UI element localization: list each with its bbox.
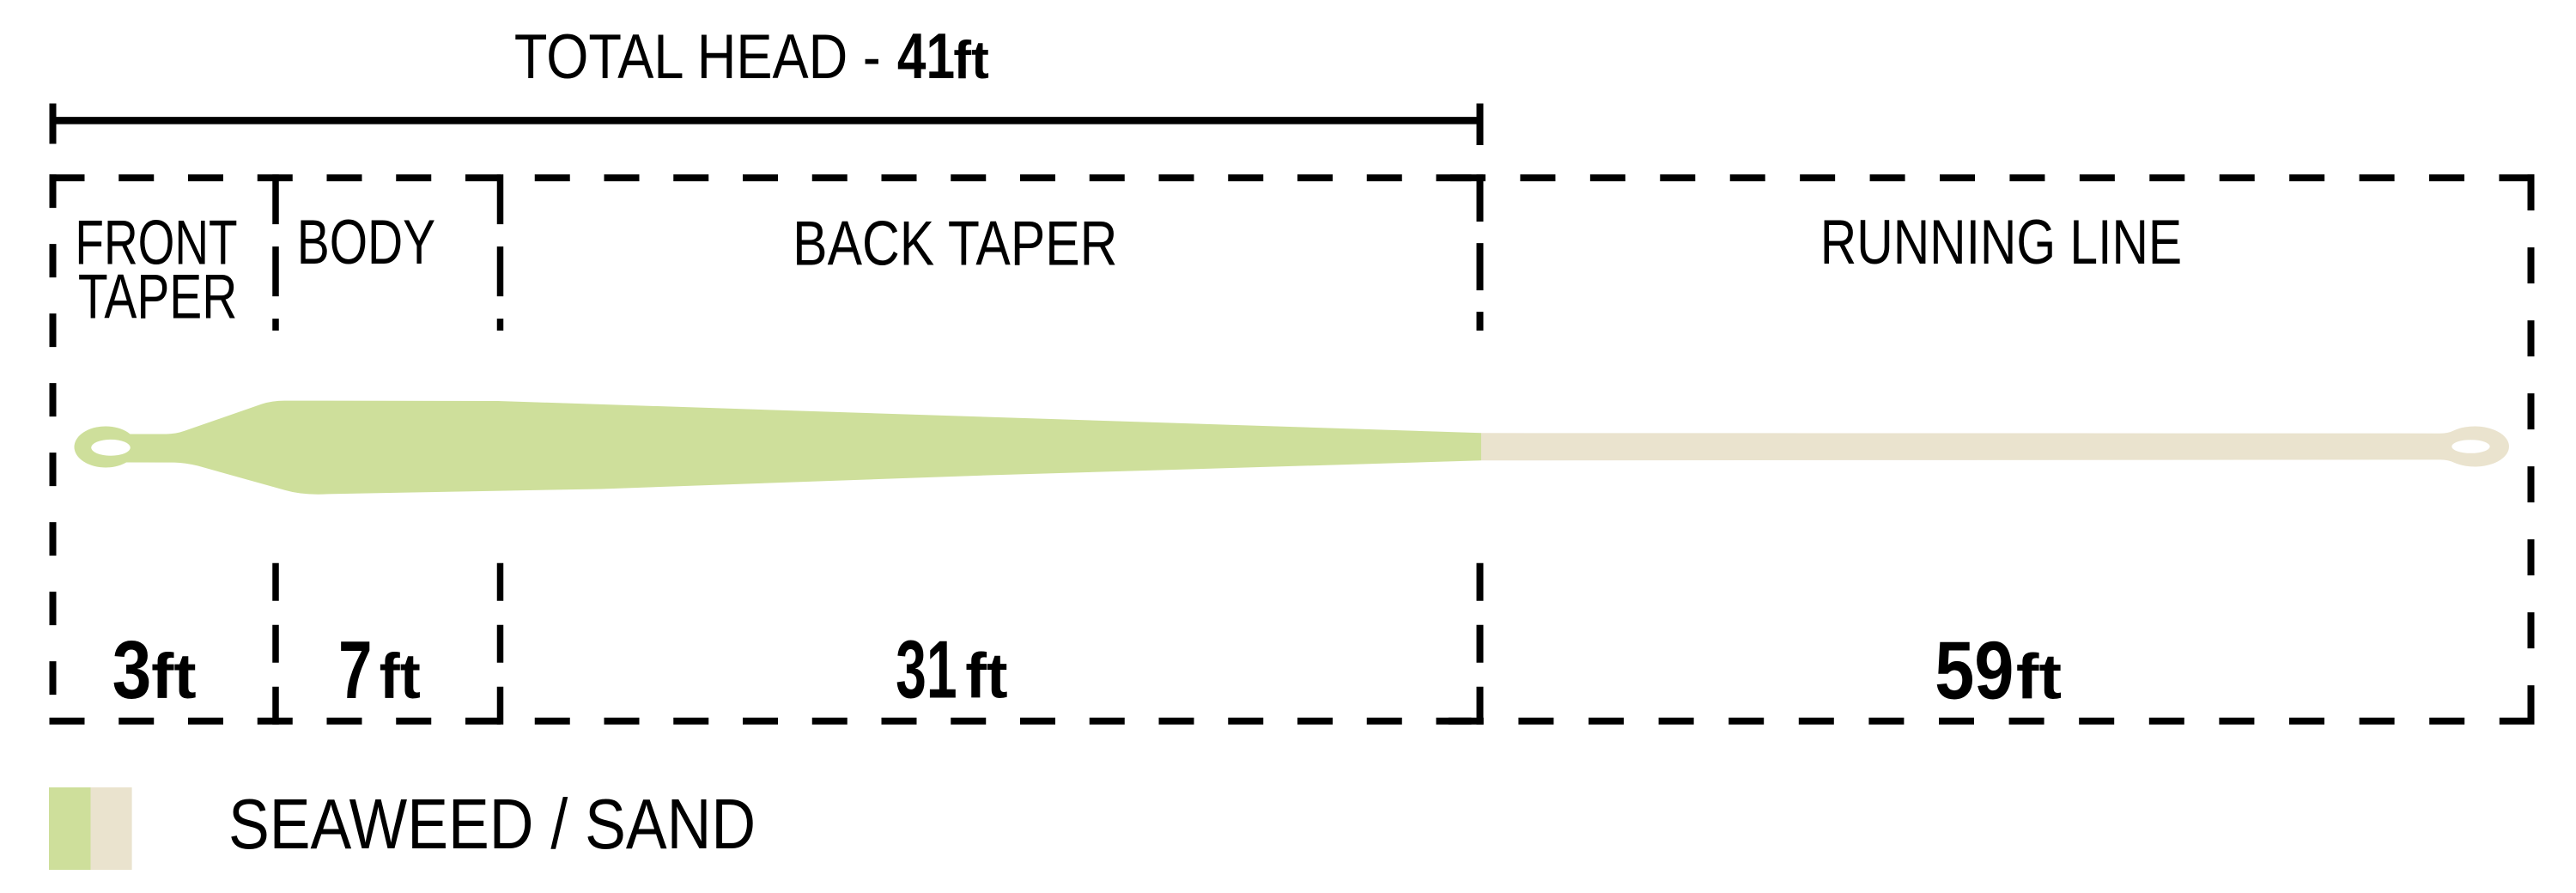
svg-text:RUNNING LINE: RUNNING LINE <box>1820 208 2182 278</box>
svg-text:41: 41 <box>897 21 955 93</box>
svg-text:TOTAL HEAD -: TOTAL HEAD - <box>514 22 881 92</box>
svg-text:ft: ft <box>953 31 988 90</box>
svg-text:7: 7 <box>338 624 372 716</box>
svg-text:ft: ft <box>965 640 1007 711</box>
svg-text:31: 31 <box>896 624 957 716</box>
svg-text:BODY: BODY <box>297 207 435 276</box>
svg-text:TAPER: TAPER <box>78 261 237 331</box>
svg-text:SEAWEED / SAND: SEAWEED / SAND <box>228 786 756 865</box>
svg-text:ft: ft <box>151 641 197 712</box>
svg-text:ft: ft <box>380 641 421 712</box>
svg-text:ft: ft <box>2016 641 2062 713</box>
svg-text:59: 59 <box>1935 624 2014 716</box>
svg-text:BACK TAPER: BACK TAPER <box>793 209 1117 279</box>
svg-text:3: 3 <box>112 623 152 715</box>
